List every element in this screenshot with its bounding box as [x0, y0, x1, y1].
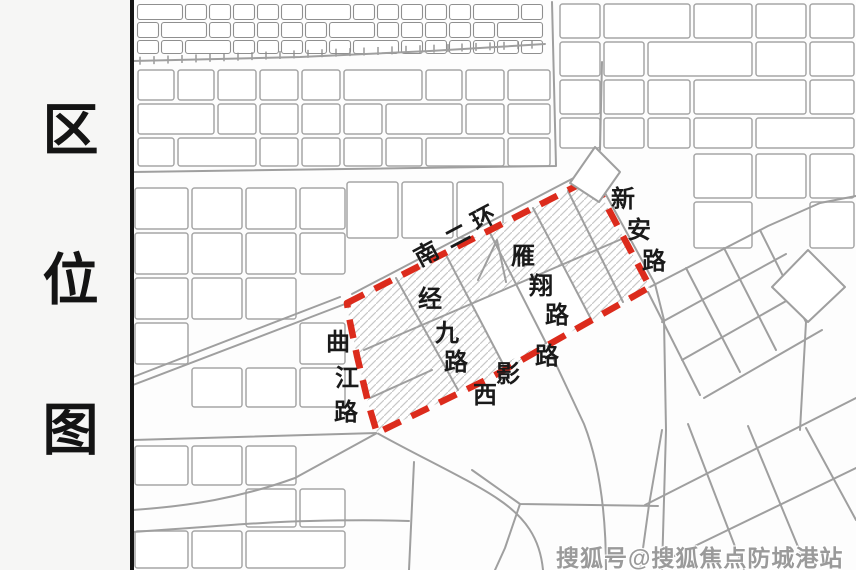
city-block [386, 138, 422, 166]
city-block [474, 5, 519, 20]
city-block [450, 41, 471, 54]
city-block [138, 104, 214, 134]
watermark: 搜狐号@搜狐焦点防城港站 [556, 539, 843, 570]
city-block [260, 104, 298, 134]
city-block [560, 80, 600, 114]
road-label-xinan: 安 [627, 219, 651, 243]
city-block [192, 233, 242, 274]
city-block [246, 188, 296, 229]
location-map-page: 南二环新安路雁翔路经九路曲江路西影路 区位图 搜狐号@搜狐焦点防城港站 [0, 0, 856, 570]
city-block [138, 41, 159, 54]
road-label-xiying: 影 [496, 363, 520, 387]
city-block [162, 23, 207, 38]
road-label-yanxiang: 翔 [529, 275, 553, 299]
city-block [474, 23, 495, 38]
city-block [282, 5, 303, 20]
city-block [378, 23, 399, 38]
city-block [258, 41, 279, 54]
city-block [234, 5, 255, 20]
city-block [330, 23, 375, 38]
city-block [560, 4, 600, 38]
road-label-xinan: 路 [642, 250, 666, 274]
city-block [300, 188, 345, 229]
city-block [344, 70, 422, 100]
city-block [218, 70, 256, 100]
city-block [135, 188, 188, 229]
city-block [192, 188, 242, 229]
city-block [192, 446, 242, 485]
city-block [302, 70, 340, 100]
city-block [648, 118, 690, 148]
city-block [560, 118, 600, 148]
city-block [508, 104, 550, 134]
city-block [450, 23, 471, 38]
city-block [138, 138, 174, 166]
city-block [522, 5, 543, 20]
city-block [426, 5, 447, 20]
city-block [246, 446, 296, 485]
city-block [694, 4, 752, 38]
city-block [810, 80, 854, 114]
city-block [135, 278, 188, 319]
city-block [344, 138, 382, 166]
city-block [138, 23, 159, 38]
title-divider-line [130, 0, 134, 570]
city-block [260, 138, 298, 166]
road-label-qujiang: 江 [335, 367, 359, 391]
road-label-xiying: 路 [535, 345, 559, 369]
city-block [246, 278, 296, 319]
city-block [402, 5, 423, 20]
city-block [218, 104, 256, 134]
city-block [810, 4, 854, 38]
city-block [302, 138, 340, 166]
road-label-yanxiang: 路 [545, 304, 569, 328]
city-block [466, 104, 504, 134]
road-label-qujiang: 曲 [326, 331, 350, 355]
city-block [604, 4, 690, 38]
city-block [135, 531, 188, 568]
city-block [756, 154, 806, 198]
city-block [302, 104, 340, 134]
city-block [282, 41, 303, 54]
city-block [756, 42, 806, 76]
city-block [306, 23, 327, 38]
road-label-xiying: 西 [473, 384, 497, 408]
city-block [178, 138, 256, 166]
city-block [694, 202, 752, 248]
city-block [426, 23, 447, 38]
road-label-jingjiu: 九 [435, 322, 459, 346]
city-block [178, 70, 214, 100]
city-block [258, 23, 279, 38]
city-block [347, 182, 398, 238]
road-label-jingjiu: 经 [418, 288, 442, 312]
road-label-jingjiu: 路 [444, 351, 468, 375]
city-block [694, 118, 752, 148]
city-block [694, 80, 806, 114]
city-block [258, 5, 279, 20]
city-block [260, 70, 298, 100]
city-block [604, 42, 644, 76]
city-block [810, 202, 854, 248]
city-block [604, 80, 644, 114]
city-block [138, 5, 183, 20]
city-block [234, 41, 255, 54]
city-block [162, 41, 183, 54]
city-block [186, 41, 231, 54]
city-block [560, 42, 600, 76]
city-block [508, 138, 550, 166]
city-block [402, 23, 423, 38]
city-block [508, 70, 550, 100]
road-label-xinan: 新 [611, 188, 635, 212]
city-block [694, 154, 752, 198]
road-label-yanxiang: 雁 [511, 245, 535, 269]
city-block [648, 42, 752, 76]
city-block [756, 4, 806, 38]
page-title: 区位图 [38, 100, 94, 550]
city-block [354, 5, 375, 20]
city-block [234, 23, 255, 38]
city-block [135, 446, 188, 485]
city-block [138, 70, 174, 100]
city-block [300, 233, 345, 274]
city-block [466, 70, 504, 100]
city-block [498, 23, 543, 38]
city-block [810, 154, 854, 198]
city-block [756, 118, 854, 148]
city-block [378, 5, 399, 20]
city-block [246, 531, 345, 568]
road-label-qujiang: 路 [334, 401, 358, 425]
title-strip: 区位图 [0, 0, 130, 570]
city-block [604, 118, 644, 148]
city-block [450, 5, 471, 20]
city-block [192, 278, 242, 319]
city-block [810, 42, 854, 76]
city-block [344, 104, 382, 134]
city-block [282, 23, 303, 38]
city-block [186, 5, 207, 20]
city-block [246, 233, 296, 274]
city-block [648, 80, 690, 114]
city-block [246, 368, 296, 407]
city-block [135, 233, 188, 274]
city-block [426, 70, 462, 100]
city-block [210, 5, 231, 20]
city-block [210, 23, 231, 38]
city-block [330, 41, 351, 54]
city-block [306, 5, 351, 20]
city-block [192, 368, 242, 407]
city-block [426, 138, 504, 166]
city-block [192, 531, 242, 568]
city-block [386, 104, 462, 134]
